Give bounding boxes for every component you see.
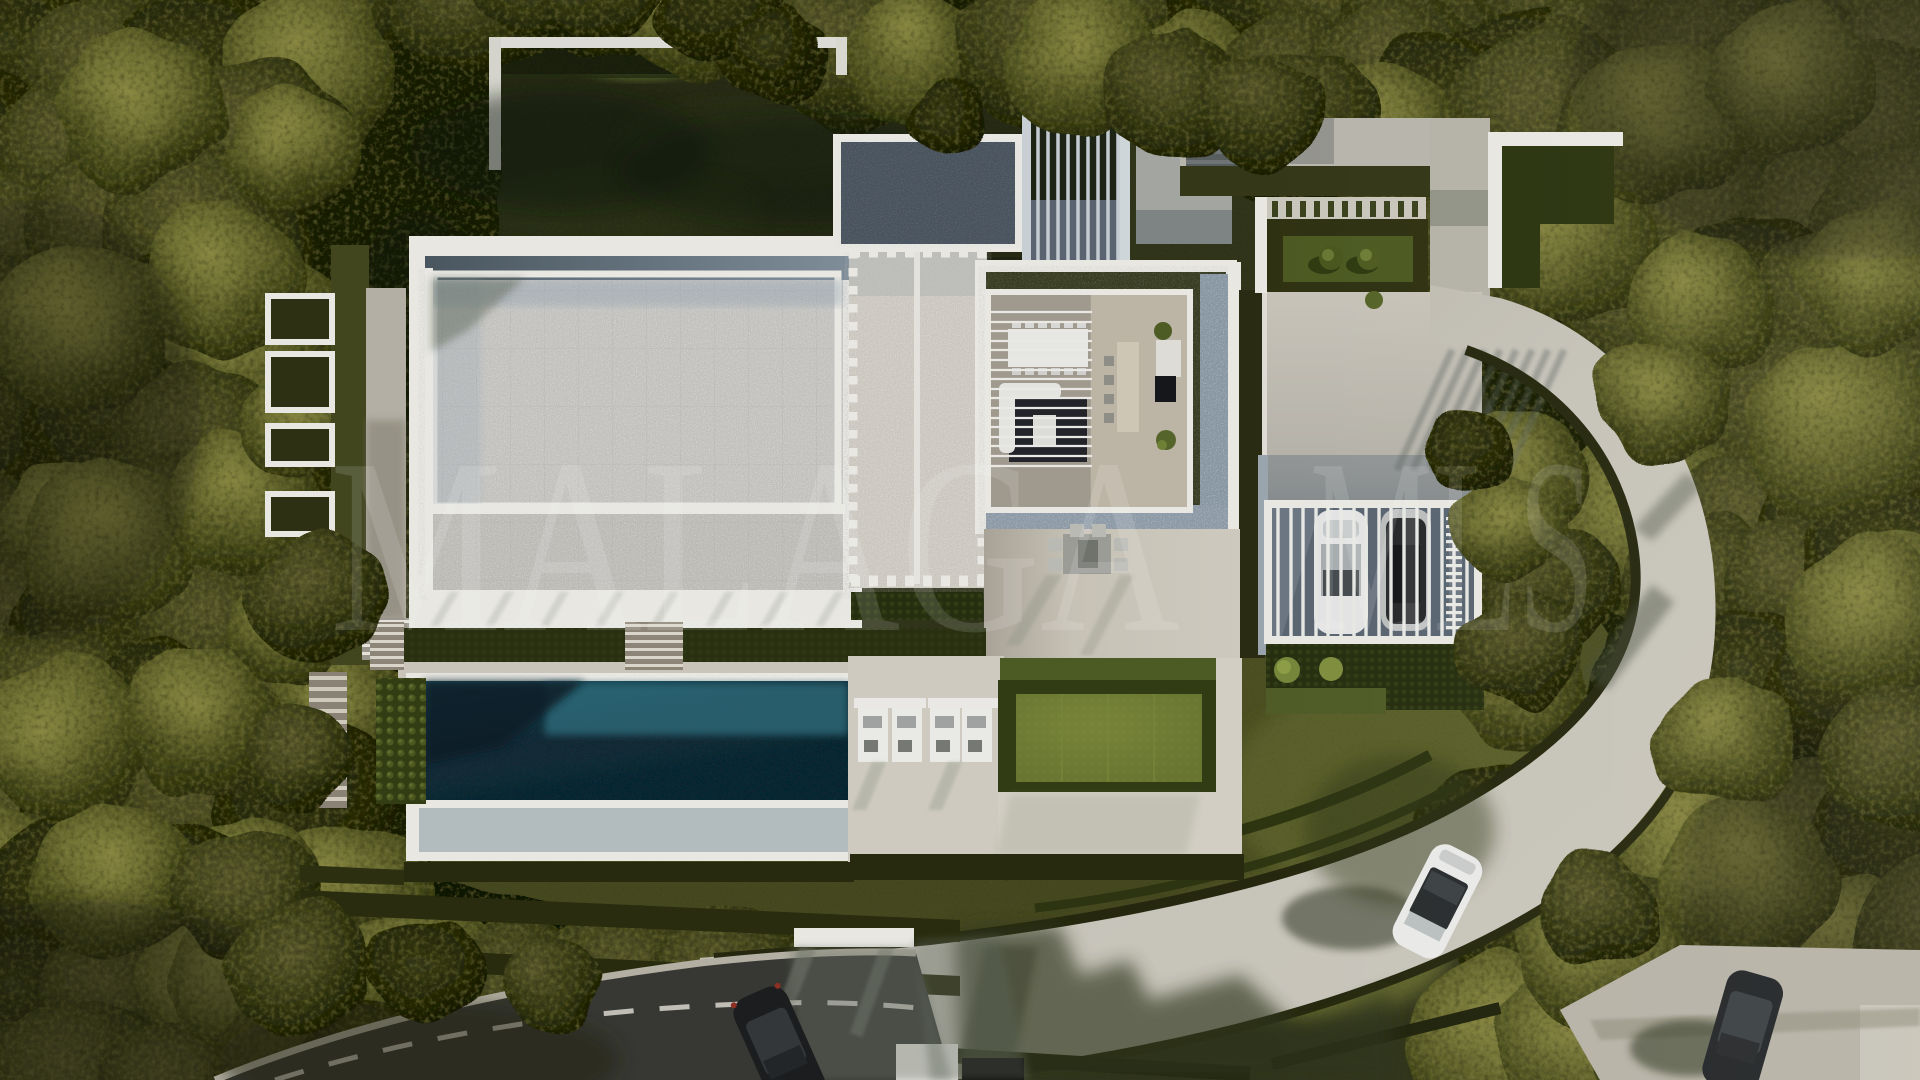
svg-text:MALAGA: MALAGA	[330, 408, 1180, 685]
svg-text:MLS: MLS	[1310, 408, 1595, 685]
